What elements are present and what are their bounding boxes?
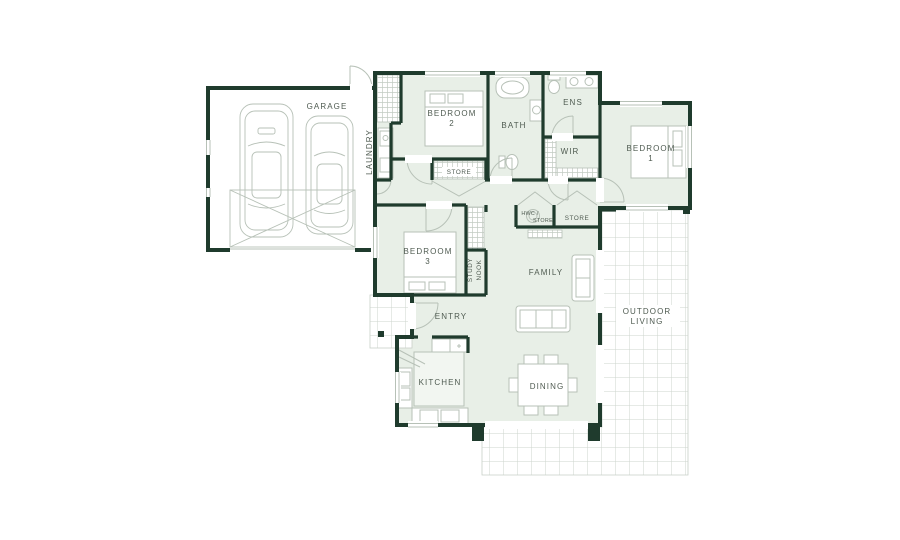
room-label-ens: ENS (563, 98, 583, 107)
room-label-store-family: STORE (565, 215, 590, 222)
garage-area (230, 104, 355, 249)
room-label-hwc: HWC / (521, 211, 539, 217)
room-label-entry: ENTRY (435, 312, 467, 321)
bathtub (496, 77, 529, 98)
room-label-store-hall: STORE (447, 169, 472, 176)
room-label-outdoor-line1: OUTDOOR (623, 307, 672, 316)
veranda-post-right (588, 423, 600, 441)
entry-porch (370, 295, 412, 348)
room-label-study: STUDY (467, 258, 474, 283)
ens-toilet (548, 75, 560, 94)
room-number-bedroom3: 3 (425, 257, 431, 266)
room-label-kitchen: KITCHEN (419, 378, 462, 387)
garage-door (230, 190, 355, 249)
room-label-bedroom3: BEDROOM (403, 247, 452, 256)
room-label-garage: GARAGE (307, 102, 348, 111)
car-left (240, 104, 293, 237)
study-desk (468, 207, 484, 249)
sofa-bottom (516, 306, 570, 332)
car-right (306, 116, 353, 234)
room-number-bedroom1: 1 (648, 154, 654, 163)
room-label-outdoor-line2: LIVING (631, 317, 664, 326)
room-label-hwc-store: STORE (533, 218, 553, 224)
room-label-bedroom1: BEDROOM (626, 144, 675, 153)
laundry-robe (377, 75, 400, 122)
room-label-wir: WIR (561, 147, 580, 156)
tv-cabinet (528, 230, 562, 238)
room-label-bath: BATH (501, 121, 526, 130)
outdoor-pier (683, 207, 690, 214)
room-label-laundry: LAUNDRY (365, 129, 374, 175)
floor-plan-canvas: GARAGE LAUNDRY BEDROOM 2 BATH ENS WIR BE… (0, 0, 900, 540)
room-label-family: FAMILY (529, 268, 563, 277)
floor-plan-page: GARAGE LAUNDRY BEDROOM 2 BATH ENS WIR BE… (0, 0, 900, 540)
room-number-bedroom2: 2 (449, 119, 455, 128)
room-label-nook: NOOK (476, 259, 483, 280)
bath-toilet (499, 155, 518, 170)
porch-post (378, 331, 384, 337)
sofa-right (572, 255, 594, 301)
room-label-dining: DINING (530, 382, 565, 391)
garage-wall (208, 88, 375, 250)
veranda-post-left (472, 423, 484, 441)
wir-shelves-left (545, 139, 556, 178)
bath-vanity (530, 100, 543, 121)
room-label-bedroom2: BEDROOM (427, 109, 476, 118)
